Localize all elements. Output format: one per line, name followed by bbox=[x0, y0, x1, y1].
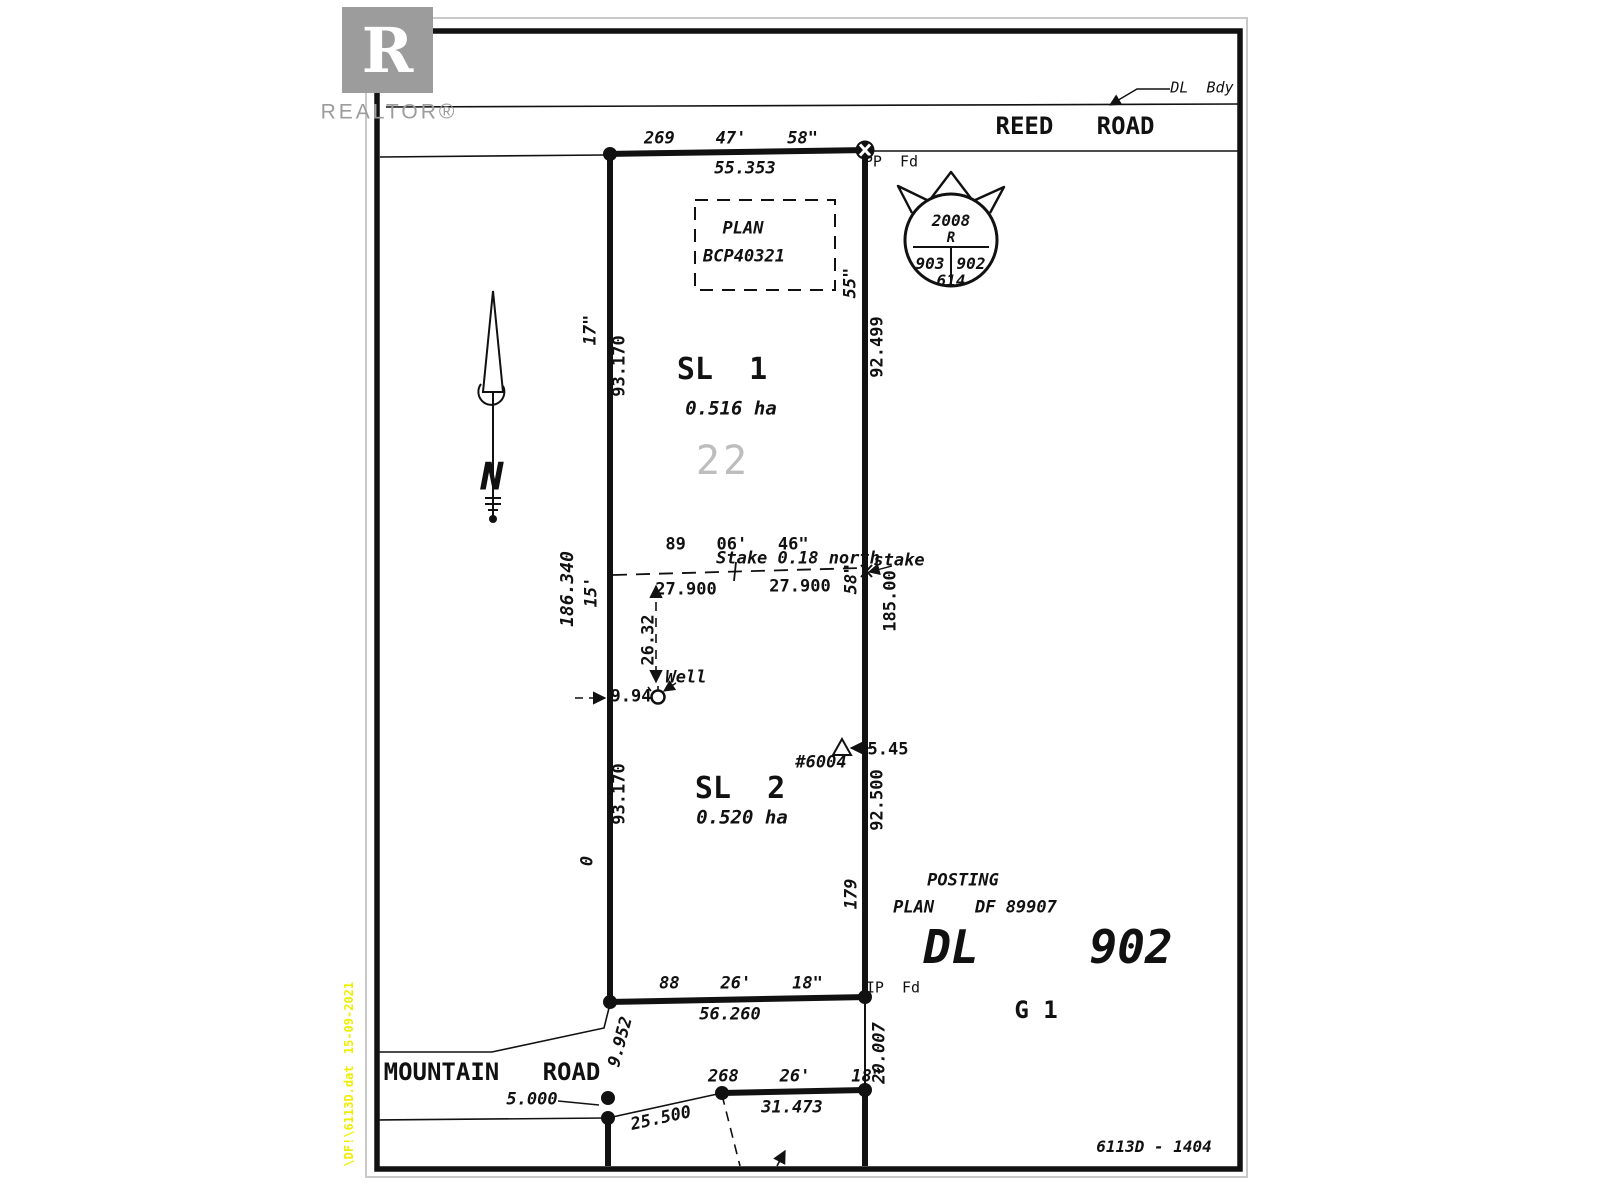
posting-line1: POSTING bbox=[927, 873, 999, 890]
plan-box-line1: PLAN bbox=[723, 221, 764, 238]
left-zero: 0 bbox=[580, 856, 597, 866]
stake-word: stake bbox=[873, 553, 924, 570]
left-len1: 93.170 bbox=[612, 335, 629, 396]
right-total: 185.00 bbox=[883, 570, 900, 631]
left-min: 15' bbox=[584, 577, 601, 608]
road-dim-leader bbox=[558, 1101, 599, 1105]
top-length: 55.353 bbox=[714, 161, 775, 178]
dl-bdy-label: DL Bdy bbox=[1170, 81, 1233, 96]
house-number: #6004 bbox=[795, 755, 846, 772]
left-total: 186.340 bbox=[559, 551, 577, 627]
sheet-number: 6113D - 1404 bbox=[1096, 1139, 1212, 1155]
left-len2: 93.170 bbox=[612, 763, 629, 824]
stamp-right: 902 bbox=[957, 256, 986, 272]
top-bearing: 269 47' 58" bbox=[644, 131, 818, 148]
margin-file: \DF!\6113D.dat bbox=[343, 1065, 355, 1166]
sl2-area: 0.520 ha bbox=[696, 809, 788, 828]
plan-bcp40321-box bbox=[695, 200, 835, 290]
plan-box-line2: BCP40321 bbox=[703, 249, 785, 266]
sheet-border bbox=[366, 18, 1247, 1177]
sl1-watermark: 22 bbox=[696, 441, 750, 481]
north-arrow-icon: N bbox=[478, 291, 504, 523]
dl-bdy-leader-line bbox=[1110, 89, 1170, 105]
bottom-bearing: 88 26' 18" bbox=[659, 976, 823, 993]
stamp-year: 2008 bbox=[932, 213, 971, 229]
right-sec1: 55" bbox=[843, 268, 860, 299]
bottom-arrow-icon bbox=[777, 1151, 785, 1166]
survey-plan-page: N R REALTOR® DL Bdy REED ROAD PP Fd 269 … bbox=[0, 0, 1600, 1200]
well-label: Well bbox=[666, 670, 707, 687]
realtor-logo: R bbox=[342, 7, 433, 93]
right-len2: 92.500 bbox=[870, 769, 887, 830]
bottom-length: 56.260 bbox=[699, 1007, 760, 1024]
sl1-area: 0.516 ha bbox=[685, 400, 777, 419]
stake-note: Stake 0.18 north bbox=[716, 551, 880, 568]
south-bearing: 268 26' 18" bbox=[708, 1069, 882, 1086]
house-offset: 5.45 bbox=[868, 742, 909, 759]
road-dim: 5.000 bbox=[506, 1092, 557, 1109]
margin-date: 15-09-2021 bbox=[343, 982, 355, 1054]
sl2-name: SL 2 bbox=[695, 774, 785, 804]
well-offset-v: 26.32 bbox=[641, 614, 658, 665]
mountain-road-label: MOUNTAIN ROAD bbox=[384, 1060, 601, 1084]
mid-left-len: 27.900 bbox=[655, 582, 716, 599]
posting-line2: PLAN DF 89907 bbox=[893, 900, 1057, 917]
group-label: G 1 bbox=[1014, 998, 1057, 1022]
district-lot-label: DL 902 bbox=[923, 924, 1172, 970]
pp-fd-label: PP Fd bbox=[864, 155, 918, 170]
left-bearing-sec: 17" bbox=[583, 315, 600, 346]
lane-dashed-line bbox=[722, 1095, 740, 1166]
north-letter: N bbox=[480, 457, 504, 498]
right-len1: 92.499 bbox=[870, 316, 887, 377]
realtor-logo-letter: R bbox=[362, 14, 414, 87]
south-length: 31.473 bbox=[761, 1100, 822, 1117]
well-offset-h: 9.94 bbox=[611, 689, 652, 706]
right-sec3: 179 bbox=[844, 879, 861, 910]
sl1-name: SL 1 bbox=[677, 355, 767, 385]
stamp-letter: R bbox=[947, 231, 955, 245]
plan-linework: N bbox=[0, 0, 1600, 1200]
stamp-bottom: 614 bbox=[937, 273, 966, 289]
ip-fd-label: IP Fd bbox=[866, 981, 920, 996]
stamp-left: 903 bbox=[916, 256, 945, 272]
realtor-brand-text: REALTOR® bbox=[321, 102, 458, 123]
reed-road-label: REED ROAD bbox=[996, 114, 1155, 138]
mid-right-len: 27.900 bbox=[769, 579, 830, 596]
